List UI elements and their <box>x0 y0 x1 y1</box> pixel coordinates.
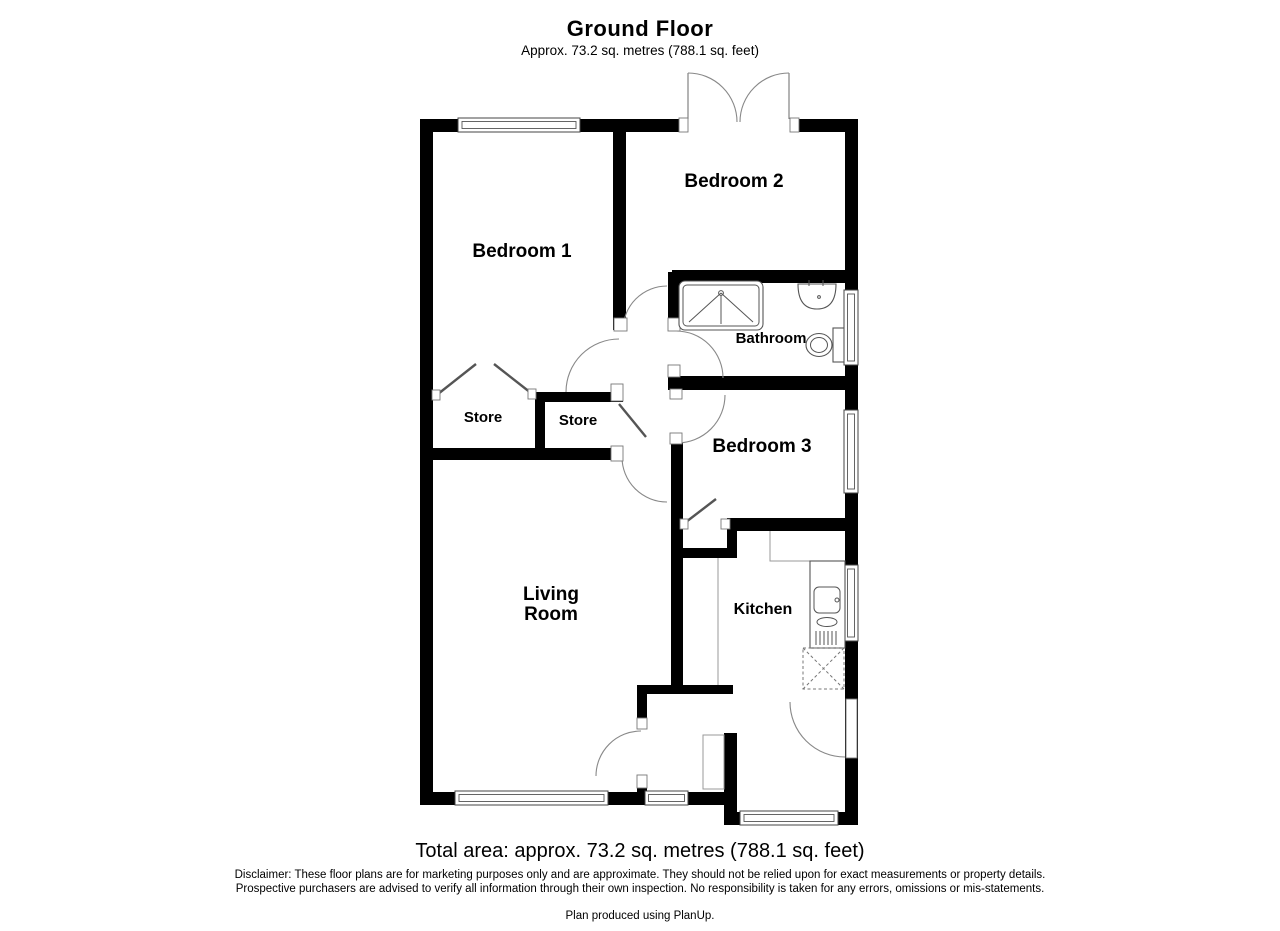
room-label-bedroom3: Bedroom 3 <box>692 437 832 457</box>
room-label-bedroom1: Bedroom 1 <box>452 242 592 262</box>
room-label-store2: Store <box>538 413 618 429</box>
room-label-living-room: Living Room <box>481 585 621 625</box>
windows <box>455 118 858 825</box>
room-label-bathroom: Bathroom <box>711 331 831 347</box>
floor-plan-page: Ground Floor Approx. 73.2 sq. metres (78… <box>0 0 1280 931</box>
room-label-bedroom2: Bedroom 2 <box>664 172 804 192</box>
room-label-store1: Store <box>443 410 523 426</box>
window-living-1 <box>455 791 608 805</box>
hall-cupboard <box>703 735 724 789</box>
door-hall <box>596 718 647 788</box>
door-living-room <box>611 446 667 502</box>
total-area-text: Total area: approx. 73.2 sq. metres (788… <box>0 840 1280 863</box>
room-label-kitchen: Kitchen <box>703 602 823 619</box>
door-entrance <box>790 699 857 758</box>
window-living-2 <box>645 791 688 805</box>
fixtures <box>679 280 845 789</box>
appliance-icon <box>803 648 844 689</box>
floor-plan-canvas <box>0 0 1280 931</box>
shower-icon <box>679 281 763 330</box>
window-porch <box>740 811 838 825</box>
kitchen-sink-icon <box>770 531 845 648</box>
basin-icon <box>798 280 836 309</box>
window-bedroom3 <box>844 410 858 493</box>
window-bathroom <box>844 290 858 365</box>
door-kitchen <box>680 499 730 529</box>
living-room-line2: Room <box>481 605 621 625</box>
interior-walls <box>432 132 845 792</box>
french-doors-bedroom2 <box>679 73 799 132</box>
door-bedroom1 <box>566 339 623 401</box>
window-kitchen <box>844 565 858 641</box>
living-room-line1: Living <box>481 585 621 605</box>
credit-text: Plan produced using PlanUp. <box>0 910 1280 923</box>
disclaimer-text: Disclaimer: These floor plans are for ma… <box>234 868 1046 896</box>
window-bedroom1 <box>458 118 580 132</box>
door-store2 <box>619 404 646 437</box>
door-store1 <box>432 364 536 400</box>
